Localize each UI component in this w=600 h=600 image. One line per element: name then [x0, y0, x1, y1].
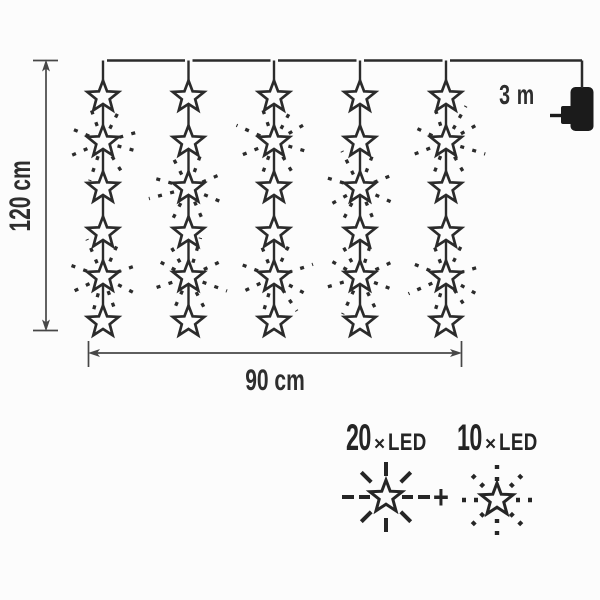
legend-star-dotted-rays-icon: [461, 464, 534, 537]
sparkle-ray: [374, 282, 393, 289]
sparkle-ray: [203, 282, 227, 291]
legend-times-icon: ×: [374, 435, 385, 454]
legend-star-solid-rays-icon: [340, 462, 432, 532]
sparkle-ray: [118, 146, 137, 151]
sparkle-ray: [327, 282, 344, 287]
legend-ray: [471, 474, 483, 486]
sparkle-ray: [196, 292, 204, 308]
legend-count-label: 10: [457, 419, 474, 456]
sparkle-ray: [155, 178, 172, 183]
star-icon: [87, 306, 118, 336]
sparkle-ray: [376, 195, 393, 202]
sparkle-ray: [90, 156, 98, 181]
sparkle-ray: [68, 127, 89, 136]
legend-ray: [471, 513, 483, 525]
sparkle-ray: [460, 146, 485, 154]
star-icon: [430, 306, 461, 336]
legend-unit-label: LED: [388, 431, 414, 455]
sparkle-ray: [341, 203, 352, 224]
sparkle-ray: [173, 291, 182, 312]
sparkle-ray: [112, 156, 123, 174]
sparkle-ray: [110, 111, 119, 129]
sparkle-ray: [461, 125, 477, 134]
product-diagram: 120 cm 90 cm 3 m 20 × LED 10 × LED +: [0, 0, 600, 600]
sparkle-ray: [204, 262, 220, 270]
sparkle-ray: [171, 154, 182, 175]
plus-sign: +: [433, 481, 449, 513]
width-dimension-label: 90 cm: [245, 366, 305, 396]
legend-times-icon: ×: [485, 435, 496, 454]
sparkle-ray: [281, 108, 292, 128]
plug-body: [571, 87, 594, 131]
legend-ray: [401, 472, 411, 482]
legend-ray: [361, 472, 371, 482]
sparkle-ray: [236, 262, 258, 271]
star-icon: [344, 306, 375, 336]
sparkle-ray: [282, 289, 297, 311]
legend-ray: [510, 474, 522, 486]
sparkle-ray: [195, 202, 203, 220]
legend-ray: [361, 512, 371, 522]
cable-length-label: 3 m: [499, 81, 535, 109]
star-icon: [481, 483, 513, 514]
legend-entry-solid: 20 × LED: [346, 419, 421, 456]
sparkle-ray: [118, 285, 134, 293]
sparkle-ray: [408, 148, 430, 157]
sparkle-ray: [375, 261, 394, 270]
star-icon: [173, 306, 204, 336]
sparkle-ray: [92, 293, 99, 316]
sparkle-ray: [202, 174, 220, 182]
legend-ray: [510, 513, 522, 525]
sparkle-ray: [108, 291, 116, 313]
sparkle-ray: [171, 203, 181, 222]
sparkle-ray: [237, 125, 261, 136]
legend-unit-label: LED: [499, 431, 525, 455]
sparkle-ray: [432, 156, 440, 178]
sparkle-ray: [158, 261, 176, 270]
height-dimension-label: 120 cm: [6, 160, 36, 231]
sparkle-ray: [366, 202, 375, 223]
sparkle-ray: [461, 285, 482, 297]
plug-base: [561, 106, 572, 124]
sparkle-ray: [71, 149, 88, 156]
sparkle-ray: [149, 192, 174, 199]
sparkle-ray: [239, 148, 258, 156]
sparkle-ray: [374, 174, 395, 183]
sparkle-ray: [119, 132, 139, 138]
sparkle-ray: [368, 292, 377, 311]
sparkle-ray: [289, 285, 308, 295]
sparkle-ray: [343, 291, 354, 315]
sparkle-ray: [289, 122, 310, 134]
legend-entry-dotted: 10 × LED: [457, 419, 532, 456]
legend-count-label: 20: [346, 419, 363, 456]
sparkle-ray: [150, 282, 173, 289]
sparkle-ray: [264, 293, 269, 310]
sparkle-ray: [327, 259, 347, 270]
legend-ray: [401, 512, 411, 522]
sparkle-ray: [72, 284, 90, 293]
sparkle-ray: [329, 195, 347, 205]
sparkle-ray: [414, 127, 432, 136]
sparkle-ray: [67, 264, 87, 271]
sparkle-ray: [414, 264, 431, 271]
sparkle-ray: [454, 290, 465, 307]
sparkle-ray: [240, 283, 261, 293]
sparkle-ray: [455, 157, 464, 173]
sparkle-ray: [409, 283, 433, 294]
sparkle-ray: [434, 293, 440, 313]
power-plug-icon: [550, 87, 594, 131]
sparkle-ray: [324, 177, 344, 183]
star-icon: [370, 480, 402, 511]
sparkle-ray: [283, 157, 295, 178]
sparkle-ray: [204, 195, 226, 204]
sparkle-ray: [288, 146, 310, 152]
star-icon: [258, 306, 289, 336]
sparkle-ray: [262, 156, 269, 175]
